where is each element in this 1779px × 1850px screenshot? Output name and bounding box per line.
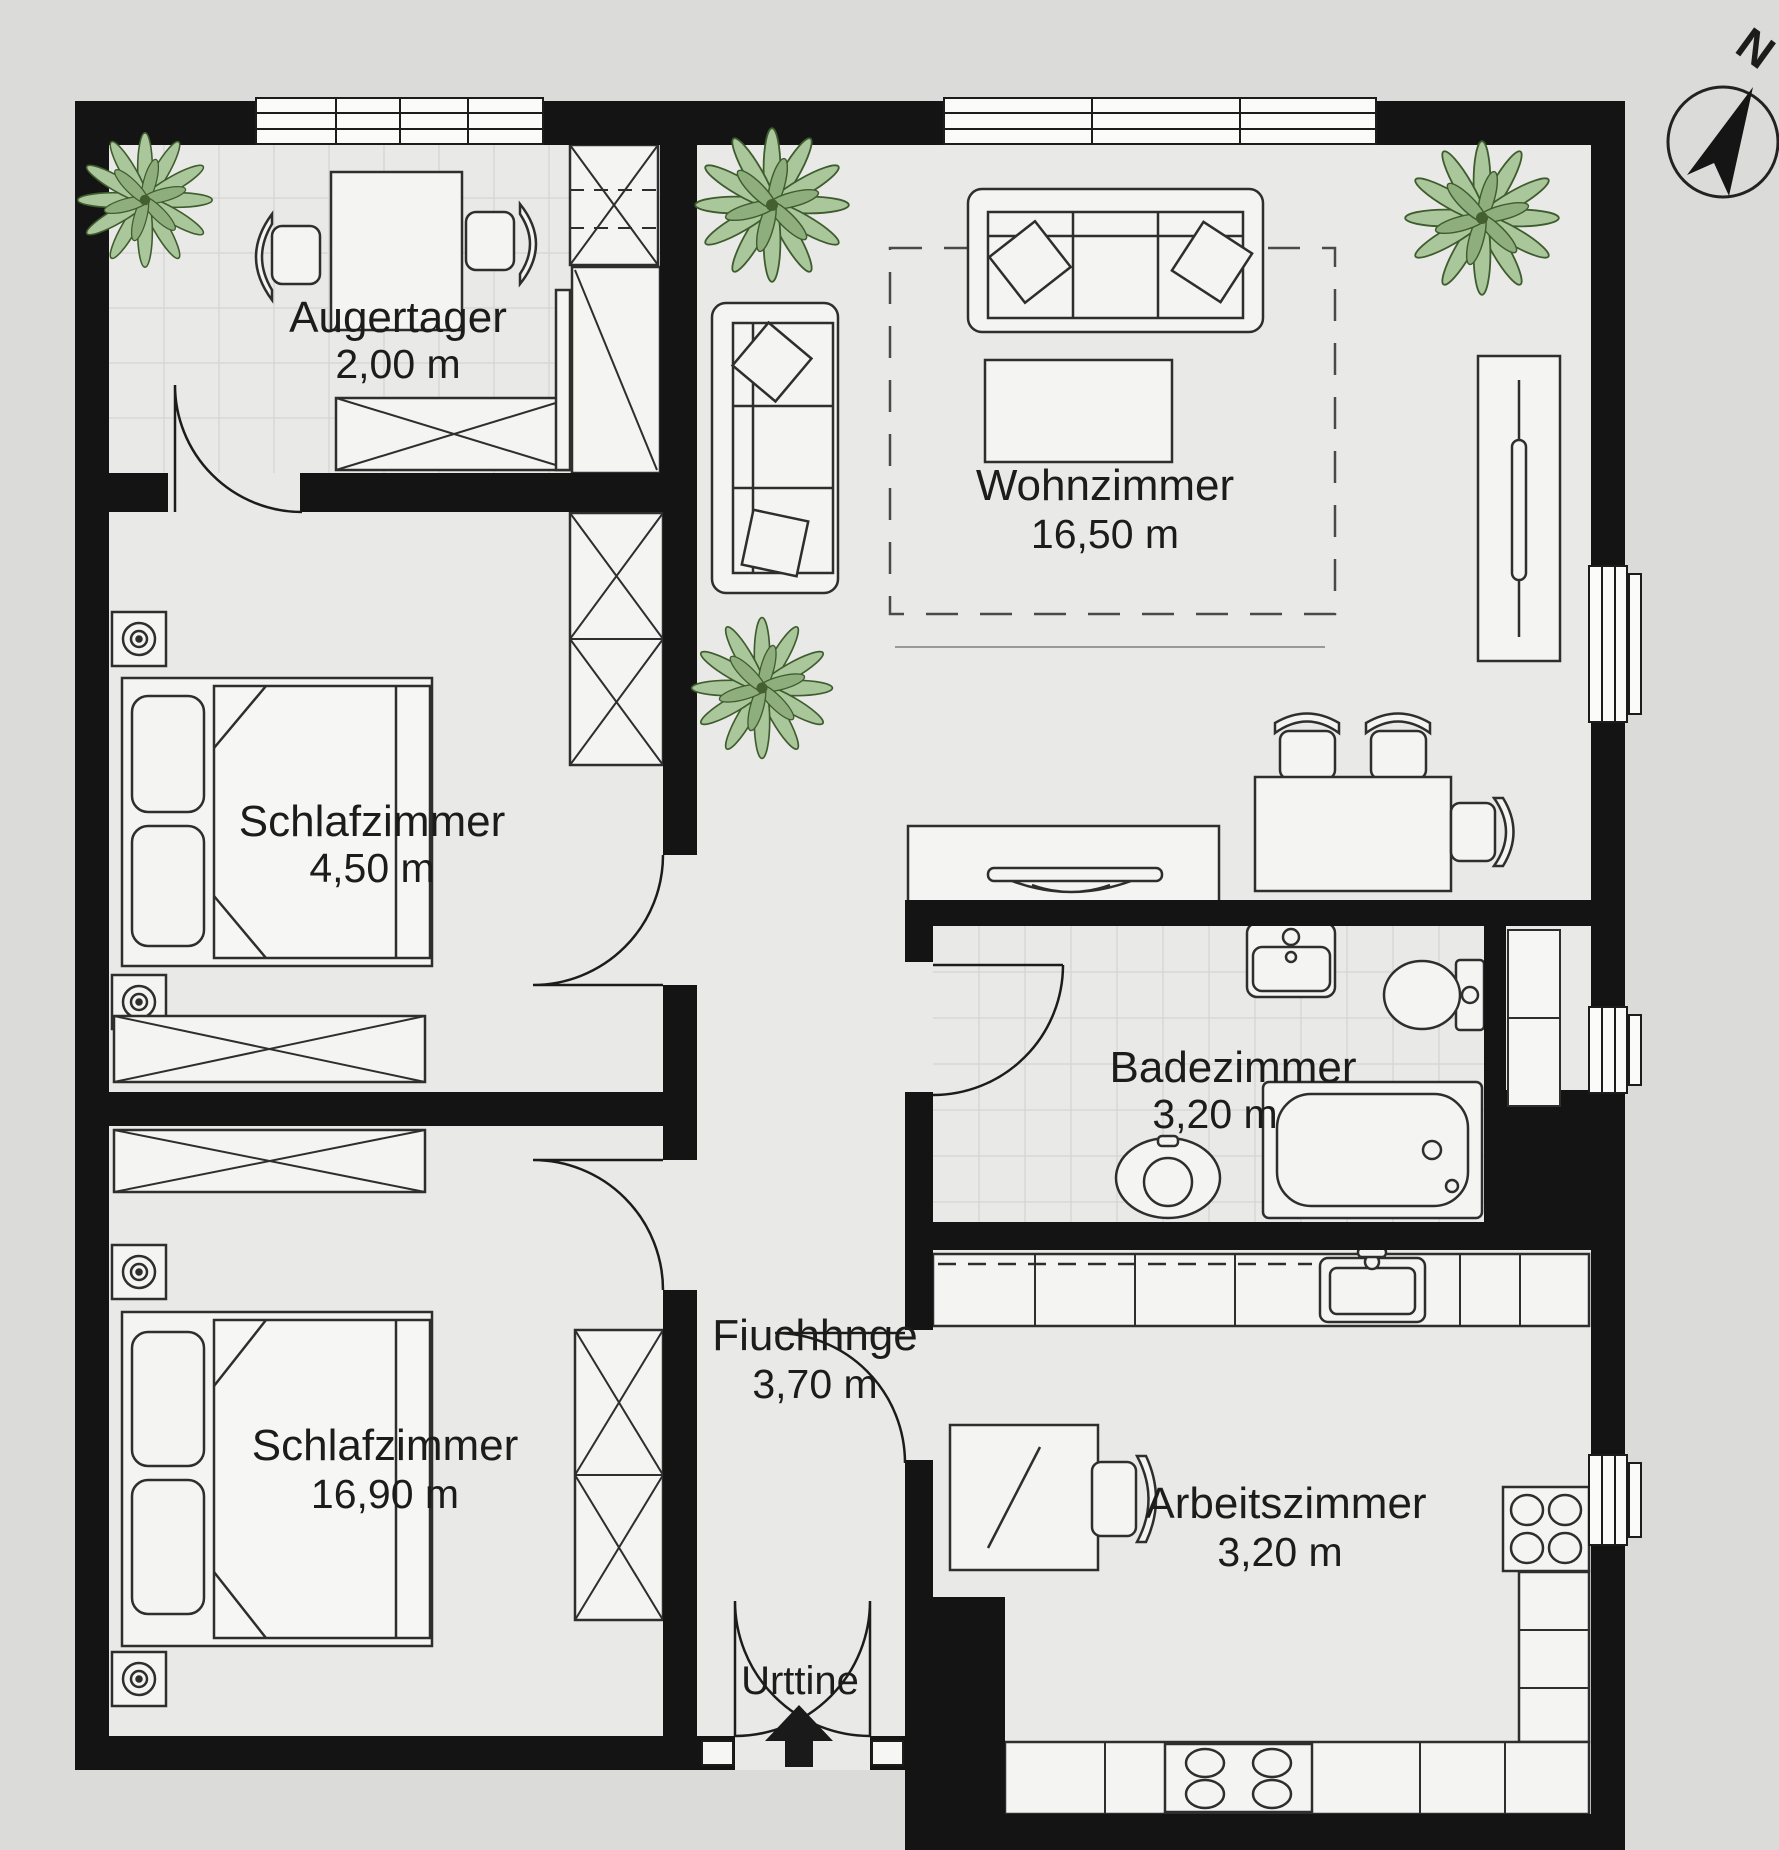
window	[1589, 566, 1641, 722]
toilet-icon	[1384, 960, 1484, 1030]
bathtub-icon	[1263, 1082, 1482, 1218]
room-area-label: 2,00 m	[335, 341, 460, 387]
coffee-table-icon	[985, 360, 1172, 462]
wardrobe-icon	[575, 1330, 663, 1620]
window	[256, 98, 543, 144]
nightstand-lamp-icon	[112, 612, 166, 666]
wardrobe-icon	[572, 267, 660, 473]
shelf-icon	[556, 290, 570, 470]
room-area-label: 16,50 m	[1031, 511, 1179, 557]
compass-icon: N	[1668, 17, 1779, 197]
console-table-icon	[908, 826, 1219, 902]
chair-icon	[272, 226, 320, 284]
pillow-icon	[132, 826, 204, 946]
room-area-label: 4,50 m	[309, 845, 434, 891]
room-name-label: Schlafzimmer	[252, 1421, 519, 1470]
floor-plan: Augertager 2,00 m Wohnzimmer 16,50 m Sch…	[0, 0, 1779, 1850]
room-area-label: 3,20 m	[1152, 1091, 1277, 1137]
wardrobe-icon	[114, 1130, 425, 1192]
window	[1589, 1007, 1641, 1093]
room-name-label: Augertager	[289, 293, 507, 342]
pillow-icon	[742, 510, 808, 576]
door-threshold	[872, 1741, 903, 1765]
stove-icon	[1503, 1487, 1589, 1571]
room-area-label: 16,90 m	[311, 1471, 459, 1517]
desk-icon	[950, 1425, 1098, 1570]
wardrobe-icon	[570, 513, 663, 765]
counter-icon	[1519, 1572, 1589, 1742]
window	[1589, 1455, 1641, 1545]
chair-icon	[1371, 731, 1426, 779]
sideboard-icon	[336, 398, 572, 470]
room-name-label: Arbeitszimmer	[1145, 1479, 1426, 1528]
room-name-label: Fiuchhnge	[712, 1311, 917, 1360]
pedestal-sink-icon	[1116, 1136, 1220, 1218]
floor-plan-page: Augertager 2,00 m Wohnzimmer 16,50 m Sch…	[0, 0, 1779, 1850]
room-name-label: Wohnzimmer	[976, 461, 1234, 510]
sink-icon	[1247, 923, 1335, 997]
room-area-label: 3,20 m	[1217, 1529, 1342, 1575]
chair-icon	[466, 212, 514, 270]
cooktop-icon	[1165, 1744, 1312, 1812]
pillow-icon	[132, 1332, 204, 1466]
room-name-label: Schlafzimmer	[239, 797, 506, 846]
room-name-label: Badezimmer	[1110, 1043, 1357, 1092]
compass-north-label: N	[1727, 17, 1779, 79]
nightstand-lamp-icon	[112, 1652, 166, 1706]
door-threshold	[702, 1741, 733, 1765]
chair-icon	[1280, 731, 1335, 779]
cabinet-icon	[570, 145, 658, 265]
room-area-label: 3,70 m	[752, 1361, 877, 1407]
dresser-icon	[114, 1016, 425, 1082]
window	[944, 98, 1376, 144]
sofa-icon	[968, 189, 1263, 332]
nightstand-lamp-icon	[112, 1245, 166, 1299]
radiator-icon	[1508, 930, 1560, 1106]
entrance-label: Urttine	[741, 1659, 859, 1703]
chair-icon	[1451, 803, 1495, 861]
tv-console-icon	[1478, 356, 1560, 661]
table-icon	[1255, 777, 1451, 891]
pillow-icon	[132, 696, 204, 812]
hall-sofa-icon	[712, 303, 838, 593]
kitchen-sink-icon	[1320, 1248, 1425, 1322]
pillow-icon	[132, 1480, 204, 1614]
